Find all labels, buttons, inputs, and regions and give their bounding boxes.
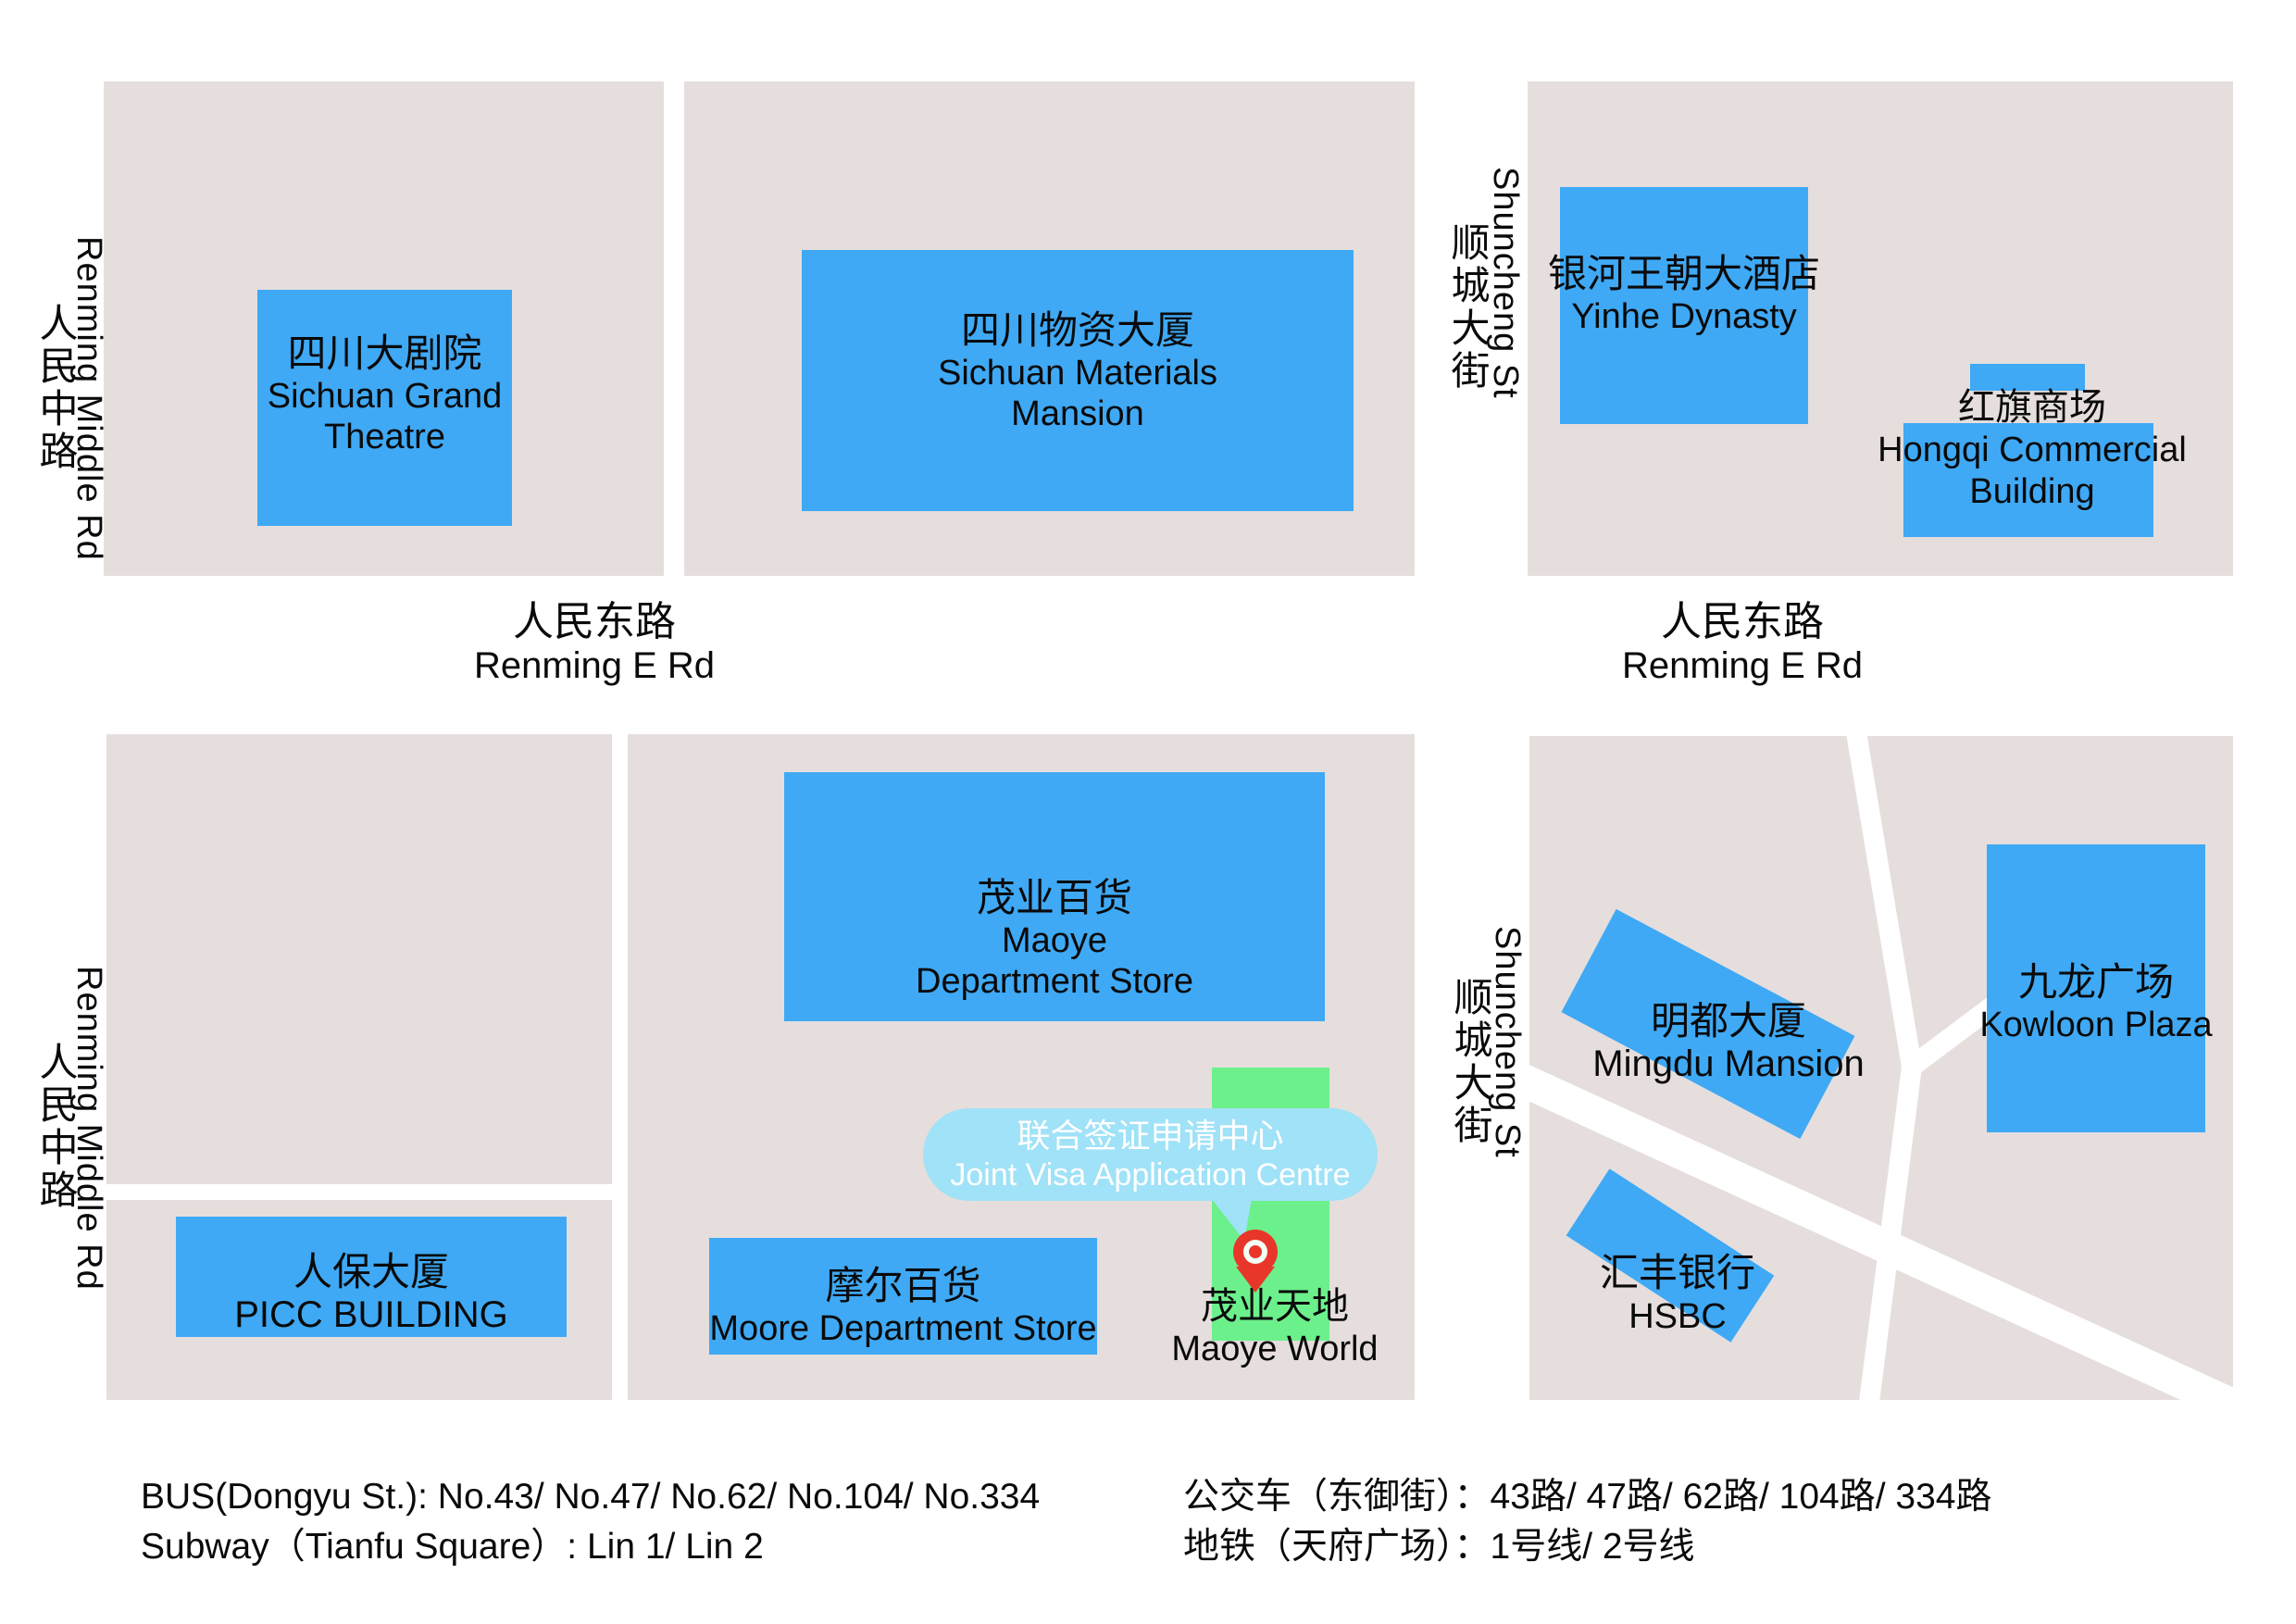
building-label: Yinhe Dynasty	[1571, 296, 1797, 337]
building-hongqi-label: 红旗商场 Hongqi Commercial Building	[1801, 386, 2264, 512]
bus-info-zh: 公交车（东御街）：43路/ 47路/ 62路/ 104路/ 334路	[1183, 1472, 1991, 1522]
building-label: Building	[1801, 471, 2264, 512]
location-pin-icon[interactable]	[1224, 1217, 1287, 1294]
building-label: 明都大厦	[1543, 999, 1914, 1043]
building-label: Mingdu Mansion	[1543, 1043, 1914, 1084]
building-picc: 人保大厦 PICC BUILDING	[176, 1217, 567, 1337]
building-label: 红旗商场	[1801, 386, 2264, 429]
building-label: Mansion	[1011, 394, 1144, 434]
tooltip-subtitle: Joint Visa Application Centre	[950, 1156, 1350, 1193]
road-label-renming-middle-en-bottom: Renming Middle Rd	[69, 966, 108, 1291]
building-label: 摩尔百货	[825, 1264, 980, 1308]
road-label: 人民东路	[363, 600, 826, 644]
building-label: PICC BUILDING	[234, 1294, 508, 1335]
building-mingdu-label: 明都大厦 Mingdu Mansion	[1543, 999, 1914, 1084]
transit-info-zh: 公交车（东御街）：43路/ 47路/ 62路/ 104路/ 334路 地铁（天府…	[1183, 1472, 1991, 1572]
building-label: HSBC	[1492, 1295, 1863, 1338]
building-label: Maoye	[1002, 920, 1107, 961]
building-label: Department Store	[916, 961, 1193, 1002]
building-hsbc-label: 汇丰银行 HSBC	[1492, 1251, 1863, 1338]
subway-info-en: Subway（Tianfu Square）: Lin 1/ Lin 2	[141, 1522, 1040, 1572]
building-label: Moore Department Store	[709, 1308, 1096, 1349]
building-yinhe-dynasty: 银河王朝大酒店 Yinhe Dynasty	[1560, 187, 1808, 424]
building-kowloon-plaza: 九龙广场 Kowloon Plaza	[1987, 844, 2205, 1132]
building-label: Maoye World	[1090, 1328, 1460, 1370]
building-label: Kowloon Plaza	[1979, 1005, 2212, 1045]
city-block-west-upper	[106, 734, 612, 1184]
road-label-shuncheng-en-top: Shuncheng St	[1485, 167, 1525, 399]
building-maoye-world-label: 茂业天地 Maoye World	[1090, 1285, 1460, 1370]
road-label-renming-e-right: 人民东路 Renming E Rd	[1511, 600, 1974, 687]
map-canvas: 四川大剧院 Sichuan Grand Theatre 四川物资大厦 Sichu…	[0, 0, 2296, 1624]
building-maoye-department-store: 茂业百货 Maoye Department Store	[784, 772, 1325, 1021]
building-sichuan-materials-mansion: 四川物资大厦 Sichuan Materials Mansion	[802, 250, 1354, 511]
road-label: 人民东路	[1511, 600, 1974, 644]
building-label: Sichuan Materials	[938, 353, 1217, 394]
road-label: Renming E Rd	[363, 644, 826, 687]
road-label-renming-middle-en-top: Renming Middle Rd	[69, 236, 108, 561]
building-label: Sichuan Grand	[268, 376, 503, 417]
building-label: 茂业百货	[977, 876, 1132, 920]
building-label: 四川物资大厦	[961, 308, 1194, 353]
building-label: Hongqi Commercial	[1801, 429, 2264, 471]
road-label-renming-e-left: 人民东路 Renming E Rd	[363, 600, 826, 687]
subway-info-zh: 地铁（天府广场）：1号线/ 2号线	[1183, 1522, 1991, 1572]
building-sichuan-grand-theatre: 四川大剧院 Sichuan Grand Theatre	[257, 290, 512, 526]
building-moore-department-store: 摩尔百货 Moore Department Store	[709, 1238, 1097, 1355]
road-label: Renming E Rd	[1511, 644, 1974, 687]
building-label: 银河王朝大酒店	[1548, 252, 1820, 296]
building-label: 人保大厦	[293, 1250, 449, 1294]
building-label: Theatre	[324, 417, 445, 457]
road-label-shuncheng-en-bottom: Shuncheng St	[1487, 926, 1527, 1158]
visa-centre-tooltip: 联合签证申请中心 Joint Visa Application Centre	[923, 1108, 1378, 1201]
building-label: 汇丰银行	[1492, 1251, 1863, 1295]
building-label: 九龙广场	[2018, 960, 2174, 1005]
building-label: 四川大剧院	[287, 331, 481, 376]
bus-info-en: BUS(Dongyu St.): No.43/ No.47/ No.62/ No…	[141, 1472, 1040, 1522]
transit-info-en: BUS(Dongyu St.): No.43/ No.47/ No.62/ No…	[141, 1472, 1040, 1572]
tooltip-title: 联合签证申请中心	[1017, 1116, 1283, 1156]
